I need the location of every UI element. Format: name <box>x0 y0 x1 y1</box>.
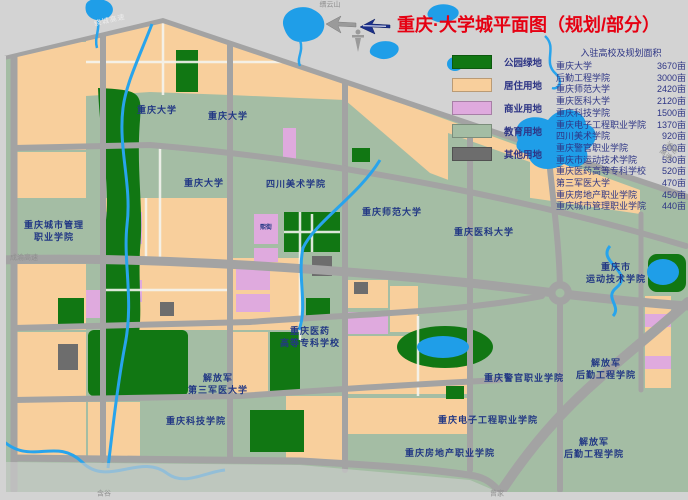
school-area: 530亩 <box>662 155 686 167</box>
school-row: 第三军医大学 470亩 <box>556 178 686 190</box>
school-name: 重庆电子工程职业学院 <box>556 120 646 132</box>
school-area: 520亩 <box>662 166 686 178</box>
legend-item: 其他用地 <box>452 147 542 161</box>
school-area: 450亩 <box>662 190 686 202</box>
school-area: 600亩 <box>662 143 686 155</box>
legend-swatch <box>452 55 492 69</box>
school-row: 重庆城市管理职业学院 440亩 <box>556 201 686 213</box>
legend-swatch <box>452 147 492 161</box>
school-area: 3000亩 <box>657 73 686 85</box>
school-area: 920亩 <box>662 131 686 143</box>
school-row: 后勤工程学院 3000亩 <box>556 73 686 85</box>
schools-table: 入驻高校及规划面积 重庆大学 3670亩 后勤工程学院 3000亩 重庆师范大学… <box>556 46 686 213</box>
school-area: 3670亩 <box>657 61 686 73</box>
legend-swatch <box>452 124 492 138</box>
school-name: 重庆医药高等专科学校 <box>556 166 646 178</box>
legend-item: 商业用地 <box>452 101 542 115</box>
school-name: 重庆师范大学 <box>556 84 610 96</box>
legend-swatch <box>452 101 492 115</box>
school-row: 重庆师范大学 2420亩 <box>556 84 686 96</box>
legend-item: 居住用地 <box>452 78 542 92</box>
school-area: 2420亩 <box>657 84 686 96</box>
school-row: 四川美术学院 920亩 <box>556 131 686 143</box>
school-name: 重庆警官职业学院 <box>556 143 628 155</box>
school-row: 重庆市运动技术学院 530亩 <box>556 155 686 167</box>
legend-label: 教育用地 <box>504 124 542 138</box>
school-name: 重庆房地产职业学院 <box>556 190 637 202</box>
schools-table-rows: 重庆大学 3670亩 后勤工程学院 3000亩 重庆师范大学 2420亩 重庆医… <box>556 61 686 213</box>
school-row: 重庆医科大学 2120亩 <box>556 96 686 108</box>
legend-label: 公园绿地 <box>504 55 542 69</box>
school-name: 四川美术学院 <box>556 131 610 143</box>
school-name: 重庆市运动技术学院 <box>556 155 637 167</box>
school-area: 2120亩 <box>657 96 686 108</box>
page-title: 重庆·大学城平面图（规划/部分） <box>397 11 660 37</box>
school-area: 1500亩 <box>657 108 686 120</box>
legend-item: 教育用地 <box>452 124 542 138</box>
school-name: 重庆医科大学 <box>556 96 610 108</box>
legend-label: 商业用地 <box>504 101 542 115</box>
schools-table-header: 入驻高校及规划面积 <box>556 46 686 59</box>
school-area: 470亩 <box>662 178 686 190</box>
legend-label: 其他用地 <box>504 147 542 161</box>
school-row: 重庆科技学院 1500亩 <box>556 108 686 120</box>
school-row: 重庆医药高等专科学校 520亩 <box>556 166 686 178</box>
school-name: 后勤工程学院 <box>556 73 610 85</box>
school-row: 重庆房地产职业学院 450亩 <box>556 190 686 202</box>
university-city-map-page: 重庆·大学城平面图（规划/部分） 公园绿地 居住用地 商业用地 教育用地 <box>0 0 688 500</box>
school-area: 1370亩 <box>657 120 686 132</box>
legend-swatch <box>452 78 492 92</box>
school-row: 重庆大学 3670亩 <box>556 61 686 73</box>
school-name: 第三军医大学 <box>556 178 610 190</box>
school-name: 重庆科技学院 <box>556 108 610 120</box>
legend-label: 居住用地 <box>504 78 542 92</box>
school-name: 重庆大学 <box>556 61 592 73</box>
school-area: 440亩 <box>662 201 686 213</box>
legend: 公园绿地 居住用地 商业用地 教育用地 其他用地 <box>452 55 542 170</box>
legend-item: 公园绿地 <box>452 55 542 69</box>
school-row: 重庆警官职业学院 600亩 <box>556 143 686 155</box>
school-row: 重庆电子工程职业学院 1370亩 <box>556 120 686 132</box>
school-name: 重庆城市管理职业学院 <box>556 201 646 213</box>
